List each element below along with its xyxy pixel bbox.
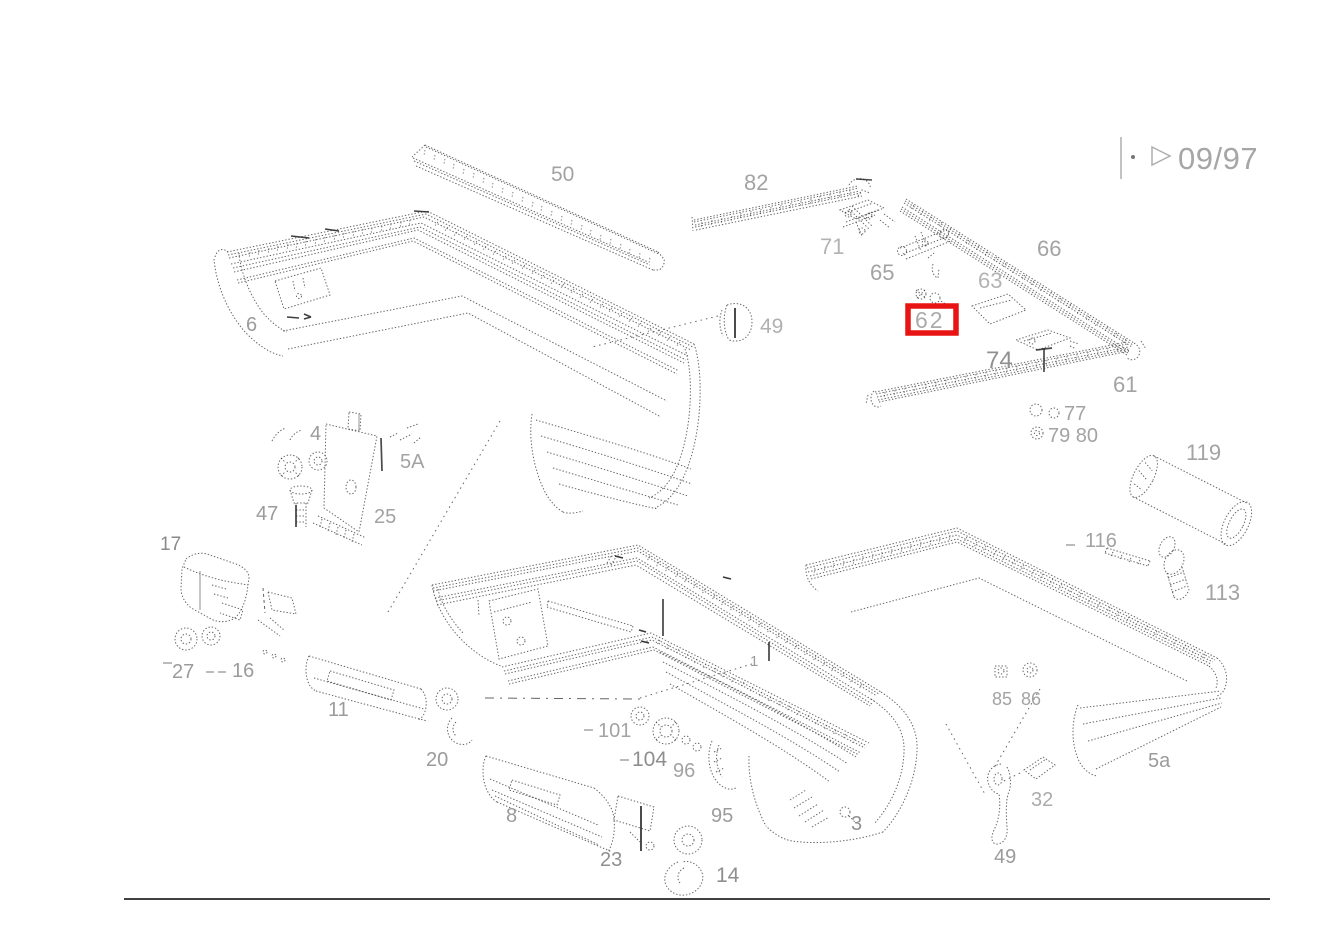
svg-text:27: 27 (172, 661, 194, 683)
svg-text:77: 77 (1064, 403, 1086, 425)
svg-text:47: 47 (256, 503, 278, 525)
svg-text:61: 61 (1113, 372, 1137, 397)
svg-text:49: 49 (760, 315, 783, 338)
svg-text:82: 82 (744, 170, 768, 195)
svg-text:4: 4 (310, 423, 321, 445)
svg-text:63: 63 (978, 268, 1002, 293)
svg-text:96: 96 (673, 760, 695, 782)
svg-text:17: 17 (160, 534, 181, 555)
svg-text:65: 65 (870, 260, 894, 285)
svg-text:119: 119 (1186, 440, 1221, 465)
svg-text:50: 50 (551, 163, 574, 186)
svg-text:23: 23 (600, 849, 622, 871)
svg-text:09/97: 09/97 (1178, 141, 1258, 176)
svg-text:116: 116 (1085, 530, 1117, 552)
svg-text:14: 14 (716, 864, 740, 887)
svg-text:25: 25 (374, 506, 396, 528)
svg-text:11: 11 (328, 699, 349, 721)
svg-text:8: 8 (506, 805, 517, 827)
svg-text:113: 113 (1205, 580, 1240, 605)
svg-text:86: 86 (1021, 689, 1041, 709)
svg-text:66: 66 (1037, 236, 1061, 261)
svg-text:85: 85 (992, 689, 1012, 709)
svg-text:6: 6 (246, 314, 257, 336)
svg-text:49: 49 (994, 846, 1016, 868)
svg-text:79 80: 79 80 (1048, 425, 1098, 447)
svg-text:62: 62 (915, 307, 945, 333)
svg-text:74: 74 (986, 347, 1013, 374)
svg-text:1: 1 (750, 653, 758, 670)
svg-text:104: 104 (632, 748, 667, 771)
svg-text:16: 16 (232, 660, 254, 682)
svg-text:95: 95 (711, 805, 733, 827)
svg-text:101: 101 (598, 720, 631, 742)
svg-text:5a: 5a (1148, 750, 1171, 772)
svg-text:5A: 5A (400, 451, 425, 473)
svg-text:32: 32 (1031, 789, 1053, 811)
svg-text:20: 20 (426, 749, 448, 771)
svg-text:71: 71 (820, 234, 844, 259)
svg-text:3: 3 (851, 813, 862, 835)
